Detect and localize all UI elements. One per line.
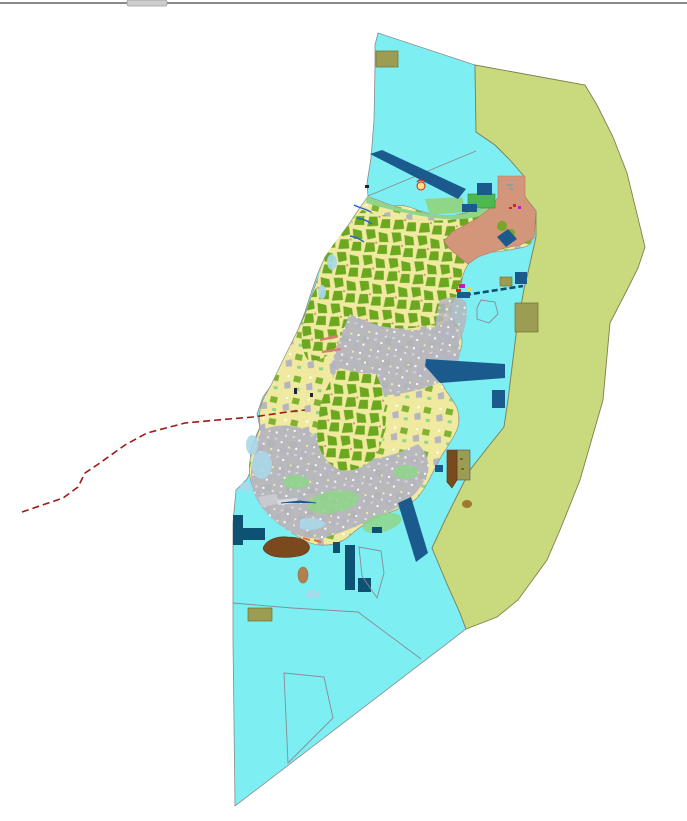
map-canvas[interactable] [0, 0, 687, 821]
tan-dot [462, 500, 472, 508]
south-quay-bar[interactable] [345, 545, 355, 590]
reserved-parcel-nw[interactable] [376, 51, 398, 67]
reserved-parcel-e1[interactable] [500, 277, 512, 286]
beacon-marker [417, 180, 425, 190]
reserved-parcel-e2[interactable] [515, 303, 538, 332]
window-edge-tab[interactable] [127, 0, 167, 6]
port-block-ne2[interactable] [462, 204, 477, 212]
tiny-quay-block[interactable] [372, 527, 382, 533]
reserved-parcel-se[interactable] [457, 450, 470, 480]
map-viewport[interactable] [0, 0, 687, 821]
reserved-parcel-sw[interactable] [248, 608, 272, 621]
brown-parcel-se[interactable] [447, 450, 457, 488]
tan-islet[interactable] [298, 567, 308, 583]
tiny-port-block[interactable] [435, 465, 443, 472]
port-block-offshore[interactable] [515, 272, 527, 284]
port-block-e[interactable] [492, 390, 505, 408]
port-block-ne1[interactable] [477, 183, 492, 195]
region-coastal-green-2 [425, 197, 466, 215]
small-quay-bar[interactable] [333, 542, 340, 553]
brown-shore-blob[interactable] [263, 537, 309, 558]
